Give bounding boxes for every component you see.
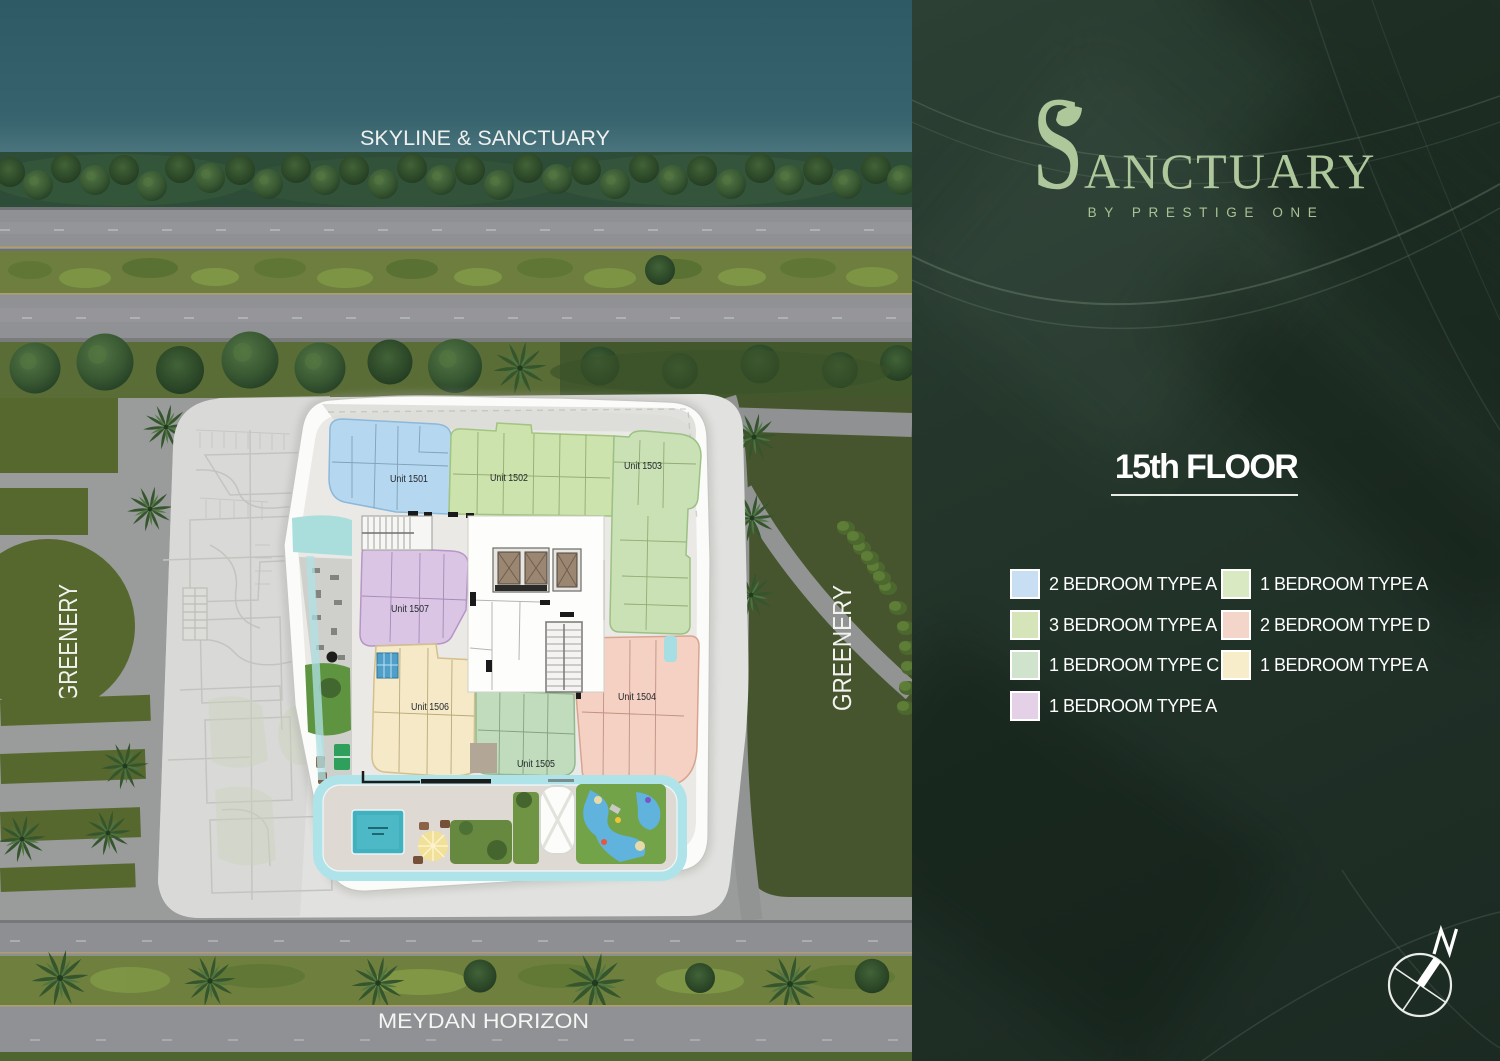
svg-text:ANCTUARY: ANCTUARY: [1084, 143, 1377, 199]
svg-text:S: S: [1032, 69, 1084, 217]
svg-text:SKYLINE & SANCTUARY: SKYLINE & SANCTUARY: [360, 127, 610, 150]
svg-text:GREENERY: GREENERY: [827, 585, 857, 711]
svg-text:Unit 1504: Unit 1504: [618, 692, 656, 703]
svg-text:Unit 1505: Unit 1505: [517, 759, 555, 770]
svg-text:Unit 1502: Unit 1502: [490, 473, 528, 484]
svg-text:BY PRESTIGE ONE: BY PRESTIGE ONE: [1088, 205, 1325, 220]
svg-text:Unit 1507: Unit 1507: [391, 604, 429, 615]
svg-text:Unit 1506: Unit 1506: [411, 702, 449, 713]
svg-text:Unit 1501: Unit 1501: [390, 474, 428, 485]
svg-text:MEYDAN HORIZON: MEYDAN HORIZON: [378, 1009, 589, 1033]
svg-text:GREENERY: GREENERY: [53, 584, 83, 701]
svg-text:Unit 1503: Unit 1503: [624, 461, 662, 472]
